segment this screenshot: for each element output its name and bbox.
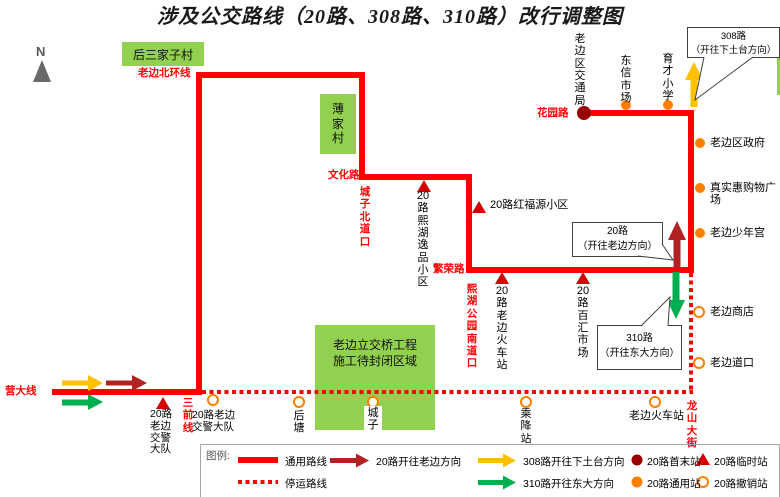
legend-label-common-station: 20路通用站 xyxy=(647,476,701,491)
r308-direction-arrow xyxy=(685,62,703,107)
cancelled-dot-daokou xyxy=(694,358,704,368)
compass-north-label: N xyxy=(36,44,45,59)
cancelled-dot-rail xyxy=(650,397,660,407)
legend-label-suspended-route: 停运路线 xyxy=(285,476,327,491)
station-label-jiaojing-temp: 20路 老边 交警 大队 xyxy=(150,409,172,456)
r20-direction-arrow xyxy=(668,221,686,268)
station-label-chengjiang: 乘 降 站 xyxy=(518,408,534,445)
station-dot-shaoniangong xyxy=(695,228,705,238)
road-label-chengzi-north: 城 子 北 道 口 xyxy=(357,186,373,248)
bus-route-diagram: 涉及公交路线（20路、308路、310路）改行调整图 N 后三家子村 薄 家 村… xyxy=(0,0,780,497)
station-dot-zhenshihui xyxy=(695,183,705,193)
legend-label-r20-direction: 20路开往老边方向 xyxy=(376,454,461,469)
station-label-houtang: 后 塘 xyxy=(291,410,307,435)
station-dot-qu-zhengfu xyxy=(695,138,705,148)
legend-heading: 图例: xyxy=(206,448,230,463)
road-label-fanrong: 繁荣路 xyxy=(433,263,465,275)
station-label-xihu-yipin: 20 路 熙 湖 逸 品 小 区 xyxy=(415,190,431,289)
legend-label-common-route: 通用路线 xyxy=(285,454,327,469)
road-label-yingda: 营大线 xyxy=(5,385,37,397)
station-label-jiaojing-cancelled: 20路老边 交警大队 xyxy=(192,410,235,434)
station-label-rail-cancelled: 老边火车站 xyxy=(629,410,684,422)
station-label-dongxin: 东 信 市 场 xyxy=(618,55,634,104)
station-label-qu-zhengfu: 老边区政府 xyxy=(710,137,765,149)
road-label-huayuan: 花园路 xyxy=(537,107,569,119)
legend-label-cancelled: 20路撤销站 xyxy=(714,476,768,491)
station-label-rail-temp: 20 路 老 边 火 车 站 xyxy=(494,285,510,371)
legend-label-terminus: 20路首末站 xyxy=(647,454,701,469)
station-label-shangdian: 老边商店 xyxy=(710,306,754,318)
station-label-zhenshihui: 真实惠购物广场 xyxy=(710,182,780,207)
temp-triangle-rail xyxy=(495,272,509,284)
road-label-longshan: 龙 山 大 街 xyxy=(684,400,700,450)
callout-r308: 308路 （开往下土台方向） xyxy=(687,27,780,58)
cancelled-dot-shangdian xyxy=(694,307,704,317)
terminus-dot-jiaotongju xyxy=(577,106,591,120)
road-label-xihu-park-south: 熙 湖 公 园 南 道 口 xyxy=(464,283,480,370)
station-label-baihui: 20 路 百 汇 市 场 xyxy=(575,285,591,359)
cancelled-dot-jiaojing xyxy=(208,395,218,405)
callout-r310: 310路 （开往东大方向） xyxy=(597,325,682,370)
temp-triangle-hongfuyuan xyxy=(472,201,486,213)
callout-r20: 20路 （开往老边方向） xyxy=(572,222,663,257)
r20-west-arrow xyxy=(106,375,147,391)
legend-label-temporary: 20路临时站 xyxy=(714,454,768,469)
cancelled-dot-houtang xyxy=(294,397,304,407)
temp-triangle-baihui xyxy=(576,272,590,284)
r308-west-arrow xyxy=(62,375,103,391)
r310-west-arrow xyxy=(62,394,103,410)
legend-label-r310-direction: 310路开往东大方向 xyxy=(523,476,614,491)
north-arrow-icon xyxy=(33,60,51,82)
station-label-jiaotongju: 老 边 区 交 通 局 xyxy=(572,33,588,107)
cancelled-dot-chengjiang xyxy=(521,397,531,407)
station-label-shaoniangong: 老边少年宫 xyxy=(710,227,765,239)
road-label-north-ring: 老边北环线 xyxy=(138,67,191,79)
station-label-yucai: 育 才 小 学 xyxy=(660,53,676,102)
station-label-hongfuyuan: 20路红福源小区 xyxy=(490,199,568,211)
station-label-chengzi: 城 子 xyxy=(364,406,382,433)
r310-direction-arrow xyxy=(667,272,685,319)
station-label-daokou: 老边道口 xyxy=(710,357,754,369)
legend-label-r308-direction: 308路开往下土台方向 xyxy=(523,454,625,469)
road-label-wenhua: 文化路 xyxy=(328,169,360,181)
